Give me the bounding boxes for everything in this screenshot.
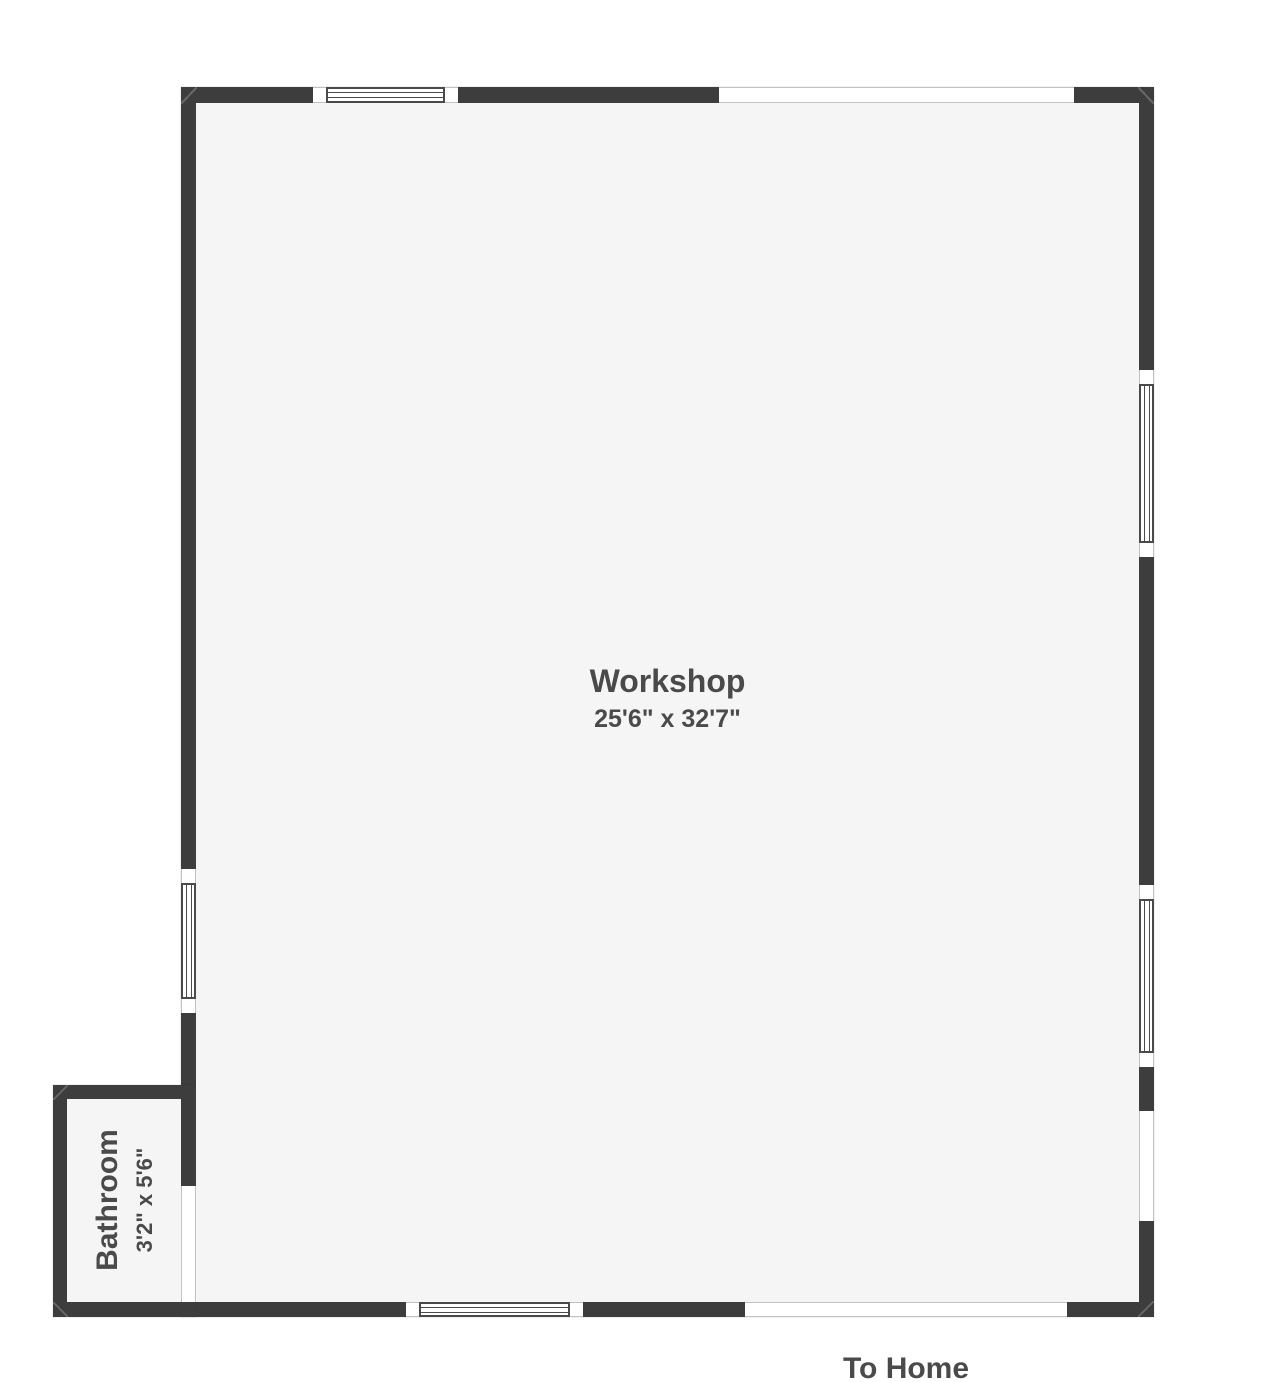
window-top-wall — [313, 87, 458, 103]
window-glass — [1139, 899, 1154, 1053]
window-glass — [326, 87, 445, 103]
bathroom-room-name: Bathroom — [91, 1129, 126, 1271]
corner-miter — [53, 1302, 68, 1317]
bathroom-room-dimensions: 3'2" x 5'6" — [132, 1148, 157, 1253]
corner-miter — [1138, 87, 1154, 104]
workshop-room-name: Workshop — [196, 663, 1139, 700]
garage-door-opening-top — [719, 87, 1074, 103]
bathroom-label: Bathroom 3'2" x 5'6" — [69, 1090, 179, 1310]
door-opening-to-home — [745, 1302, 1067, 1317]
door-opening-right — [1139, 1111, 1154, 1221]
floor-plan: Workshop 25'6" x 32'7" Bathroom 3'2" x 5… — [0, 0, 1280, 1382]
workshop-label: Workshop 25'6" x 32'7" — [196, 663, 1139, 734]
corner-miter — [181, 87, 197, 104]
workshop-room-dimensions: 25'6" x 32'7" — [196, 705, 1139, 734]
window-right-wall-upper — [1139, 370, 1154, 557]
window-glass — [181, 883, 196, 999]
to-home-label: To Home — [745, 1352, 1067, 1382]
window-left-wall — [181, 869, 196, 1013]
corner-miter — [1138, 1301, 1154, 1317]
corner-miter — [53, 1085, 68, 1100]
window-glass — [1139, 384, 1154, 543]
window-glass — [419, 1302, 570, 1317]
window-bottom-wall — [406, 1302, 583, 1317]
bathroom-door-opening — [181, 1186, 196, 1302]
window-right-wall-lower — [1139, 885, 1154, 1067]
